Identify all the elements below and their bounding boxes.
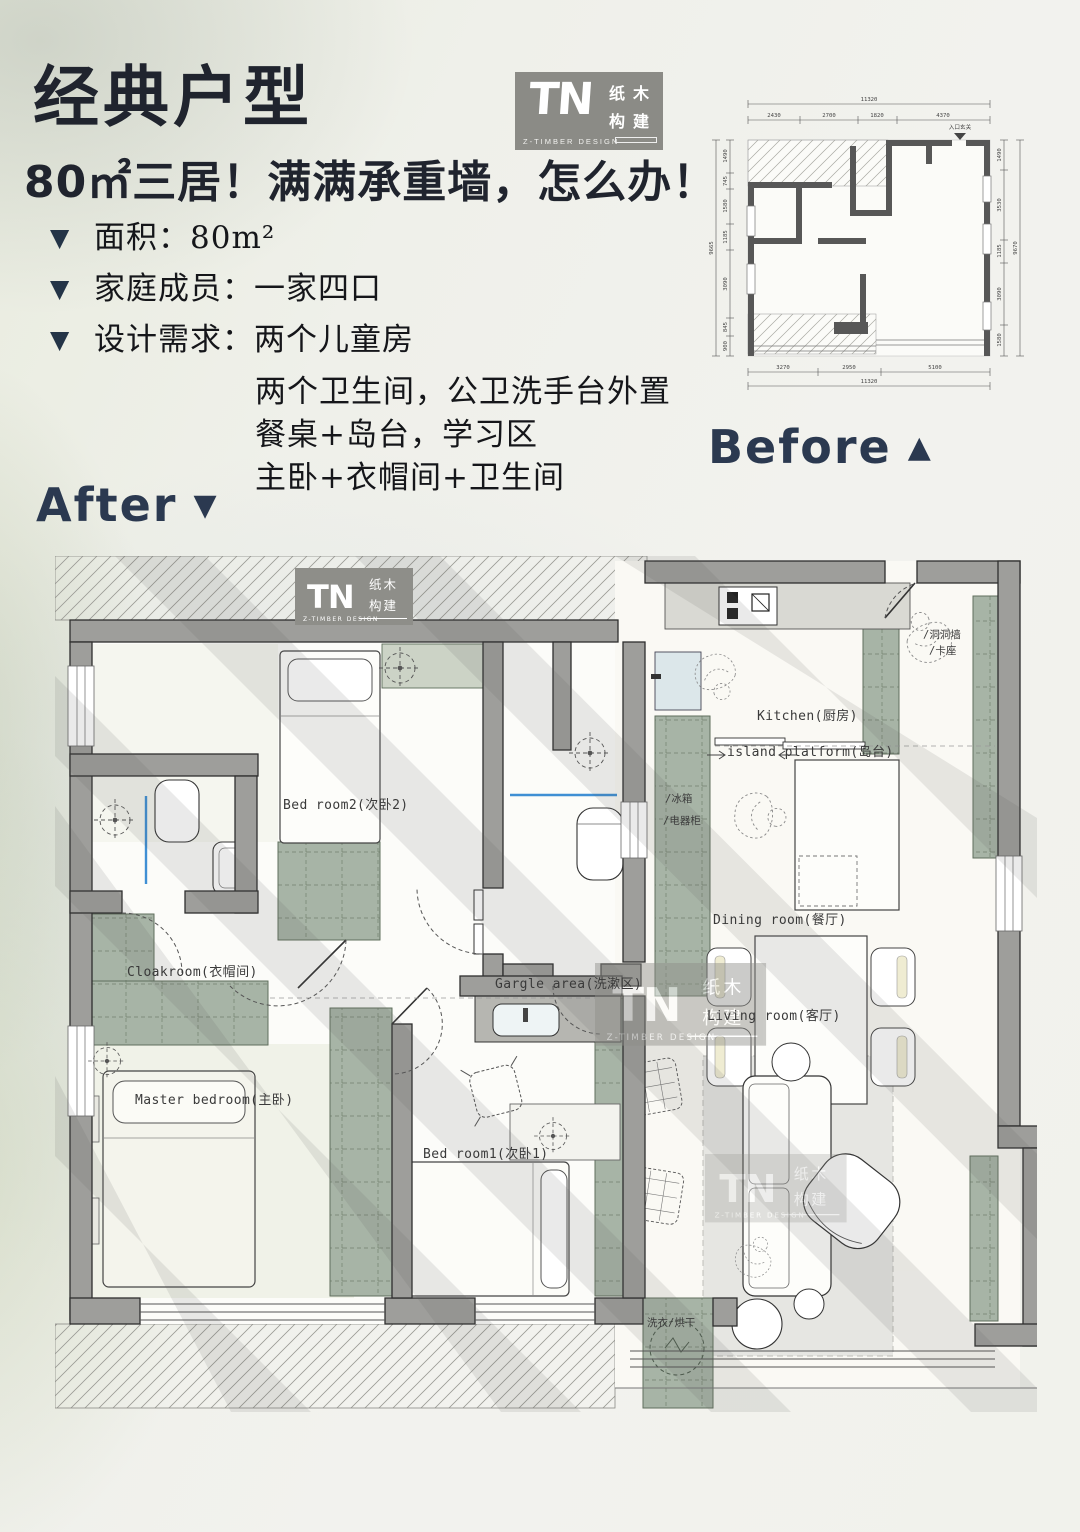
label-gargle: Gargle area(洗漱区) bbox=[495, 977, 642, 992]
spec-family-label: 家庭成员： bbox=[94, 271, 254, 307]
svg-text:9670: 9670 bbox=[1013, 241, 1019, 254]
spec-family: ▼ 家庭成员：一家四口 bbox=[50, 269, 690, 309]
svg-text:845: 845 bbox=[723, 322, 729, 332]
triangle-bullet-icon: ▼ bbox=[50, 269, 94, 309]
svg-text:1490: 1490 bbox=[997, 148, 1003, 161]
brand-logo-mark: TN bbox=[527, 74, 593, 125]
svg-text:11320: 11320 bbox=[861, 97, 878, 103]
label-appliance: /电器柜 bbox=[663, 814, 701, 827]
svg-text:2950: 2950 bbox=[842, 365, 855, 371]
label-living: Living room(客厅) bbox=[707, 1008, 841, 1024]
brand-logo: TN 纸木 构建 Z-TIMBER DESIGN bbox=[515, 72, 663, 150]
kitchen-sink bbox=[655, 652, 701, 710]
brand-logo-bar bbox=[615, 137, 657, 143]
label-fridge: /冰箱 bbox=[665, 792, 692, 805]
label-cloakroom: Cloakroom(衣帽间) bbox=[127, 964, 258, 980]
spec-requirements: ▼ 设计需求：两个儿童房 bbox=[50, 320, 690, 360]
brand-logo-tagline: Z-TIMBER DESIGN bbox=[523, 137, 619, 146]
after-heading: After ▼ bbox=[36, 478, 219, 532]
spec-area-label: 面积： bbox=[94, 220, 190, 256]
spec-area-value: 80m² bbox=[190, 220, 275, 256]
svg-text:1490: 1490 bbox=[723, 149, 729, 162]
svg-text:1185: 1185 bbox=[723, 230, 729, 243]
spec-req-line4: 主卧+衣帽间+卫生间 bbox=[255, 457, 690, 500]
poster-page: 经典户型 TN 纸木 构建 Z-TIMBER DESIGN 80㎡三居！满满承重… bbox=[0, 0, 1080, 1532]
spec-req-label: 设计需求： bbox=[94, 322, 254, 358]
before-heading: Before ▲ bbox=[708, 420, 933, 474]
coffee-table bbox=[732, 1299, 782, 1349]
before-heading-text: Before bbox=[708, 420, 892, 474]
svg-text:9665: 9665 bbox=[709, 241, 715, 254]
spec-list: ▼ 面积：80m² ▼ 家庭成员：一家四口 ▼ 设计需求：两个儿童房 两个卫生间… bbox=[50, 218, 690, 500]
before-entry-marker: 入口玄关 bbox=[949, 123, 972, 140]
page-title: 经典户型 bbox=[33, 44, 313, 140]
label-dining: Dining room(餐厅) bbox=[713, 912, 847, 928]
svg-text:3090: 3090 bbox=[997, 287, 1003, 300]
label-pegboard: /洞洞墙 bbox=[923, 628, 961, 641]
brand-logo-cn-bottom: 构建 bbox=[609, 108, 657, 132]
svg-text:3530: 3530 bbox=[997, 198, 1003, 211]
label-laundry: 洗衣/烘干 bbox=[647, 1316, 695, 1329]
svg-text:900: 900 bbox=[723, 341, 729, 351]
svg-text:5100: 5100 bbox=[928, 365, 941, 371]
svg-text:3090: 3090 bbox=[723, 277, 729, 290]
label-kitchen: Kitchen(厨房) bbox=[757, 708, 858, 724]
down-triangle-icon: ▼ bbox=[194, 488, 219, 523]
label-bedroom1: Bed room1(次卧1) bbox=[423, 1146, 549, 1162]
svg-text:11320: 11320 bbox=[861, 379, 878, 385]
spec-req-value: 两个儿童房 bbox=[254, 322, 414, 358]
svg-text:1580: 1580 bbox=[997, 333, 1003, 346]
svg-text:1185: 1185 bbox=[997, 244, 1003, 257]
island-counter bbox=[795, 760, 899, 910]
label-bedroom2: Bed room2(次卧2) bbox=[283, 797, 409, 813]
triangle-bullet-icon: ▼ bbox=[50, 218, 94, 258]
after-floorplan: TN 纸木 构建 Z-TIMBER DESIGN bbox=[55, 556, 1037, 1414]
svg-text:745: 745 bbox=[723, 176, 729, 186]
triangle-bullet-icon: ▼ bbox=[50, 320, 94, 360]
label-bench: /卡座 bbox=[929, 644, 956, 657]
svg-text:2430: 2430 bbox=[767, 113, 780, 119]
svg-text:1580: 1580 bbox=[723, 199, 729, 212]
label-master: Master bedroom(主卧) bbox=[135, 1093, 293, 1108]
spec-area: ▼ 面积：80m² bbox=[50, 218, 690, 258]
before-entry-label: 入口玄关 bbox=[949, 123, 972, 131]
svg-text:3270: 3270 bbox=[776, 365, 789, 371]
brand-logo-cn-top: 纸木 bbox=[609, 80, 657, 104]
up-triangle-icon: ▲ bbox=[908, 430, 933, 465]
spec-req-line2: 两个卫生间，公卫洗手台外置 bbox=[255, 371, 690, 414]
page-subtitle: 80㎡三居！满满承重墙，怎么办！ bbox=[24, 146, 717, 210]
svg-text:1820: 1820 bbox=[870, 113, 883, 119]
svg-text:2700: 2700 bbox=[822, 113, 835, 119]
side-table bbox=[794, 1289, 824, 1319]
spec-family-value: 一家四口 bbox=[254, 271, 382, 307]
svg-text:4370: 4370 bbox=[936, 113, 949, 119]
before-floorplan: 入口玄关 11320 2430 2700 1820 bbox=[700, 88, 1036, 410]
after-heading-text: After bbox=[36, 478, 178, 532]
spec-req-line3: 餐桌+岛台，学习区 bbox=[255, 414, 690, 457]
bathroom2-fixtures bbox=[577, 808, 623, 880]
label-island: island platform(岛台) bbox=[727, 744, 894, 760]
